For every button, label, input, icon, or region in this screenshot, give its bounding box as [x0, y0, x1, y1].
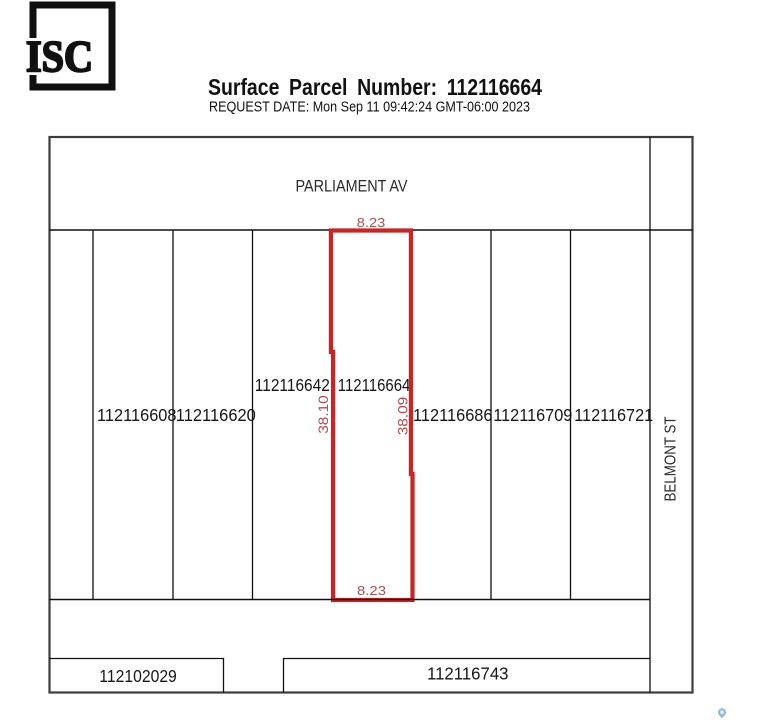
svg-text:112116642: 112116642	[255, 375, 330, 395]
svg-text:38.10: 38.10	[316, 395, 331, 434]
svg-text:112116721: 112116721	[574, 405, 653, 425]
svg-text:PARLIAMENT AV: PARLIAMENT AV	[296, 178, 408, 196]
svg-text:112116743: 112116743	[427, 664, 509, 684]
svg-text:112102029: 112102029	[99, 666, 177, 686]
svg-text:8.23: 8.23	[357, 216, 386, 230]
svg-text:ISC: ISC	[26, 32, 93, 81]
svg-text:112116620: 112116620	[176, 405, 256, 425]
svg-text:REQUEST DATE: Mon Sep 11 09:42: REQUEST DATE: Mon Sep 11 09:42:24 GMT-06…	[209, 100, 530, 116]
svg-text:112116664: 112116664	[338, 375, 411, 395]
svg-text:112116608: 112116608	[97, 405, 177, 425]
svg-text:8.23: 8.23	[357, 584, 386, 598]
svg-text:38.09: 38.09	[396, 397, 411, 436]
svg-text:Surface Parcel Number: 1121166: Surface Parcel Number: 112116664	[208, 74, 542, 100]
svg-text:112116709: 112116709	[493, 405, 572, 425]
svg-text:112116686: 112116686	[413, 405, 493, 425]
svg-text:BELMONT ST: BELMONT ST	[662, 416, 679, 501]
